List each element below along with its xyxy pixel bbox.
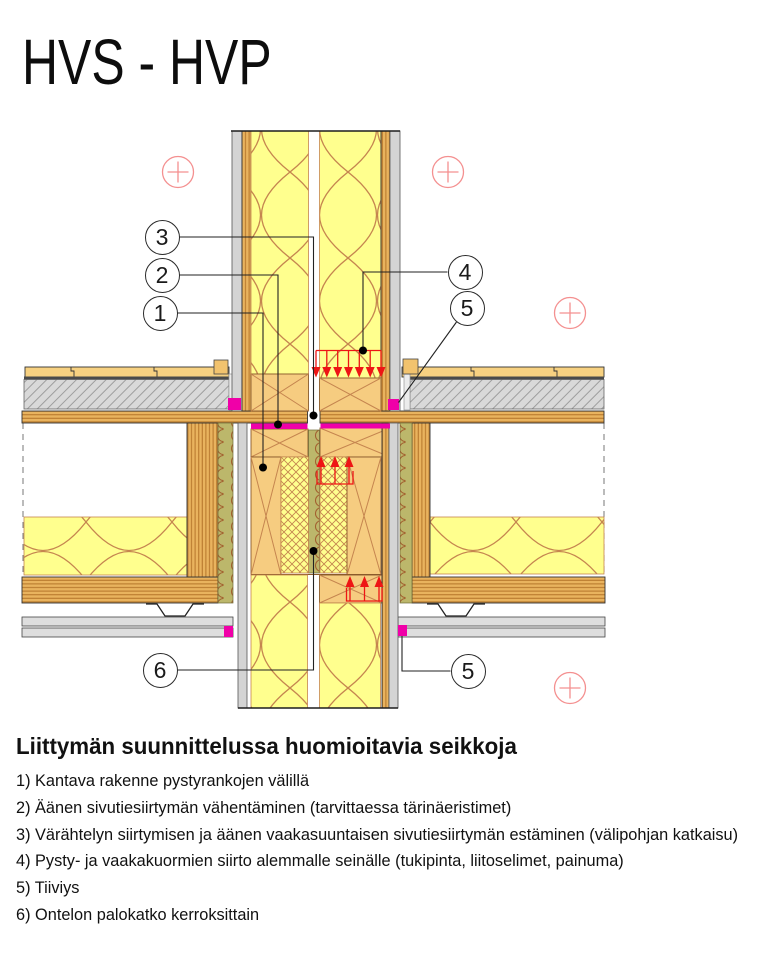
upper-wall-insulation-left bbox=[251, 131, 309, 374]
callout-4: 4 bbox=[448, 255, 483, 290]
seal-ceiling-right bbox=[398, 625, 407, 636]
edge-joist-right bbox=[412, 423, 430, 577]
note-item-6: 6) Ontelon palokatko kerroksittain bbox=[16, 902, 734, 929]
floorboards-right bbox=[402, 367, 604, 377]
callout-3: 3 bbox=[145, 220, 180, 255]
registration-mark-icon bbox=[555, 298, 586, 329]
resilient-channel-left bbox=[146, 604, 204, 616]
registration-mark-icon bbox=[555, 673, 586, 704]
vibration-isolator-strip-right bbox=[321, 424, 391, 429]
floorboards-left bbox=[25, 367, 229, 377]
ceiling-board-right-1 bbox=[398, 617, 605, 626]
lower-wall-insulation-left bbox=[281, 457, 309, 573]
trim-right bbox=[403, 359, 418, 374]
trim-left bbox=[214, 360, 228, 374]
floor-bottom-chord-right bbox=[412, 577, 605, 603]
screed-right bbox=[410, 380, 604, 410]
lower-wall-cladding-left bbox=[238, 423, 247, 708]
callout-2: 2 bbox=[145, 258, 180, 293]
registration-mark-icon bbox=[433, 157, 464, 188]
upper-wall-insulation-right bbox=[320, 131, 382, 378]
seal-screed-right bbox=[388, 399, 399, 410]
ceiling-board-left-2 bbox=[22, 628, 233, 637]
lower-wall-battens-right bbox=[382, 423, 389, 708]
lower-storey-wall-insulation-right bbox=[320, 603, 381, 708]
lower-wall-cladding-right bbox=[389, 423, 398, 708]
registration-mark-icon bbox=[163, 157, 194, 188]
callout-5-top: 5 bbox=[450, 291, 485, 326]
design-notes: Liittymän suunnittelussa huomioitavia se… bbox=[16, 733, 764, 929]
callout-5-bottom: 5 bbox=[451, 654, 486, 689]
note-item-1: 1) Kantava rakenne pystyrankojen välillä bbox=[16, 768, 734, 795]
note-item-2: 2) Äänen sivutiesiirtymän vähentäminen (… bbox=[16, 795, 734, 822]
note-item-3: 3) Värähtelyn siirtymisen ja äänen vaaka… bbox=[16, 822, 734, 849]
membrane-left bbox=[24, 377, 229, 380]
note-item-4: 4) Pysty- ja vaakakuormien siirto alemma… bbox=[16, 848, 734, 875]
ceiling-board-left-1 bbox=[22, 617, 233, 626]
note-item-5: 5) Tiiviys bbox=[16, 875, 734, 902]
construction-detail-svg bbox=[0, 0, 768, 730]
subfloor-sheathing-left bbox=[22, 411, 308, 423]
membrane-right bbox=[404, 377, 604, 380]
resilient-channel-right bbox=[427, 604, 485, 616]
floor-insulation-right bbox=[430, 517, 604, 574]
seal-screed-left bbox=[228, 398, 241, 410]
subfloor-sheathing-right bbox=[320, 411, 604, 423]
floor-bottom-chord-left bbox=[22, 577, 218, 603]
floor-insulation-left bbox=[24, 517, 187, 575]
notes-heading: Liittymän suunnittelussa huomioitavia se… bbox=[16, 733, 742, 760]
upper-wall-cladding-right bbox=[390, 131, 400, 411]
callout-6: 6 bbox=[143, 653, 178, 688]
callout-1: 1 bbox=[143, 296, 178, 331]
edge-board-right bbox=[400, 423, 412, 603]
detail-sheet: HVS - HVP bbox=[0, 0, 768, 960]
screed-left bbox=[24, 380, 229, 410]
edge-joist-left bbox=[187, 423, 218, 577]
upper-wall-battens-left bbox=[242, 131, 251, 411]
ceiling-board-right-2 bbox=[398, 628, 605, 637]
upper-wall-cladding-left bbox=[232, 131, 242, 411]
lower-wall-insulation-right bbox=[320, 457, 347, 573]
edge-board-left bbox=[218, 423, 233, 603]
seal-ceiling-left bbox=[224, 626, 233, 637]
detail-drawing: 3 2 1 4 5 6 5 bbox=[0, 0, 768, 730]
lower-storey-wall-insulation-left bbox=[251, 575, 308, 708]
